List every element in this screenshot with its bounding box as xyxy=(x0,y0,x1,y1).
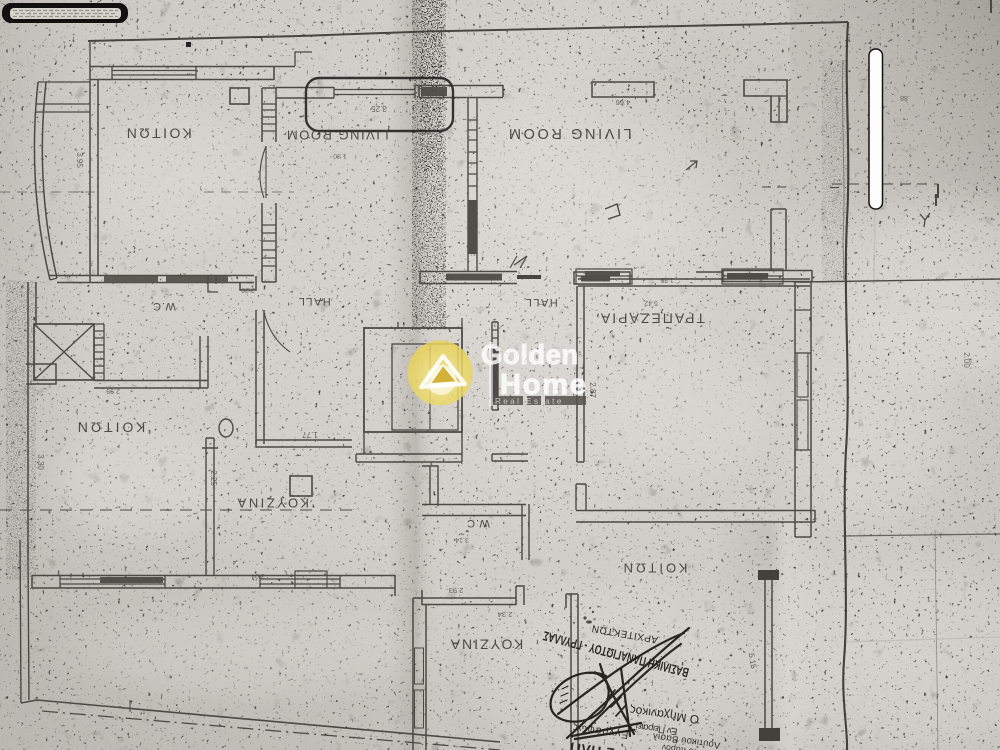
svg-text:ΚΟΥΖΙΝΑ: ΚΟΥΖΙΝΑ xyxy=(449,636,524,652)
svg-text:Golden: Golden xyxy=(481,339,579,370)
svg-text:4.66: 4.66 xyxy=(616,98,631,107)
svg-text:3.04: 3.04 xyxy=(251,572,265,579)
svg-text:3.14: 3.14 xyxy=(455,536,469,543)
svg-text:ΤΡΑΠΕΖΑΡΙΑ: ΤΡΑΠΕΖΑΡΙΑ xyxy=(599,310,705,326)
svg-text:2.00: 2.00 xyxy=(962,352,971,368)
svg-text:W.C: W.C xyxy=(152,300,176,312)
svg-text:2.87: 2.87 xyxy=(588,382,597,398)
svg-text:3.30: 3.30 xyxy=(36,454,45,470)
svg-text:.88: .88 xyxy=(900,94,910,101)
svg-text:2.20: 2.20 xyxy=(241,286,255,293)
svg-text:3.25: 3.25 xyxy=(371,104,387,113)
svg-text:1.90: 1.90 xyxy=(333,152,347,159)
svg-text:Real Estate: Real Estate xyxy=(495,397,564,406)
svg-text:LIVING ROOM: LIVING ROOM xyxy=(506,125,631,141)
svg-text:LIVING ROOM: LIVING ROOM xyxy=(285,128,388,143)
svg-text:ΚΟΙΤΩΝ: ΚΟΙΤΩΝ xyxy=(124,125,192,141)
svg-text:1.85: 1.85 xyxy=(660,276,674,283)
svg-text:2.34: 2.34 xyxy=(498,610,513,619)
svg-text:2.93: 2.93 xyxy=(449,586,464,595)
svg-text:2.99: 2.99 xyxy=(106,387,120,394)
svg-text:ΚΟΙΤΩΝ: ΚΟΙΤΩΝ xyxy=(75,419,146,435)
svg-text:W.C: W.C xyxy=(466,517,490,529)
svg-text:5.42: 5.42 xyxy=(644,299,658,306)
svg-text:1.77: 1.77 xyxy=(302,430,318,439)
svg-text:ΚΟΙΤΩΝ: ΚΟΙΤΩΝ xyxy=(621,561,688,576)
svg-text:3.95: 3.95 xyxy=(75,152,84,168)
svg-text:HALL: HALL xyxy=(297,295,331,307)
svg-text:HALL: HALL xyxy=(524,296,558,308)
svg-text:2.25: 2.25 xyxy=(209,470,218,486)
svg-text:ΚΟΥΖΙΝΑ: ΚΟΥΖΙΝΑ xyxy=(235,496,309,511)
